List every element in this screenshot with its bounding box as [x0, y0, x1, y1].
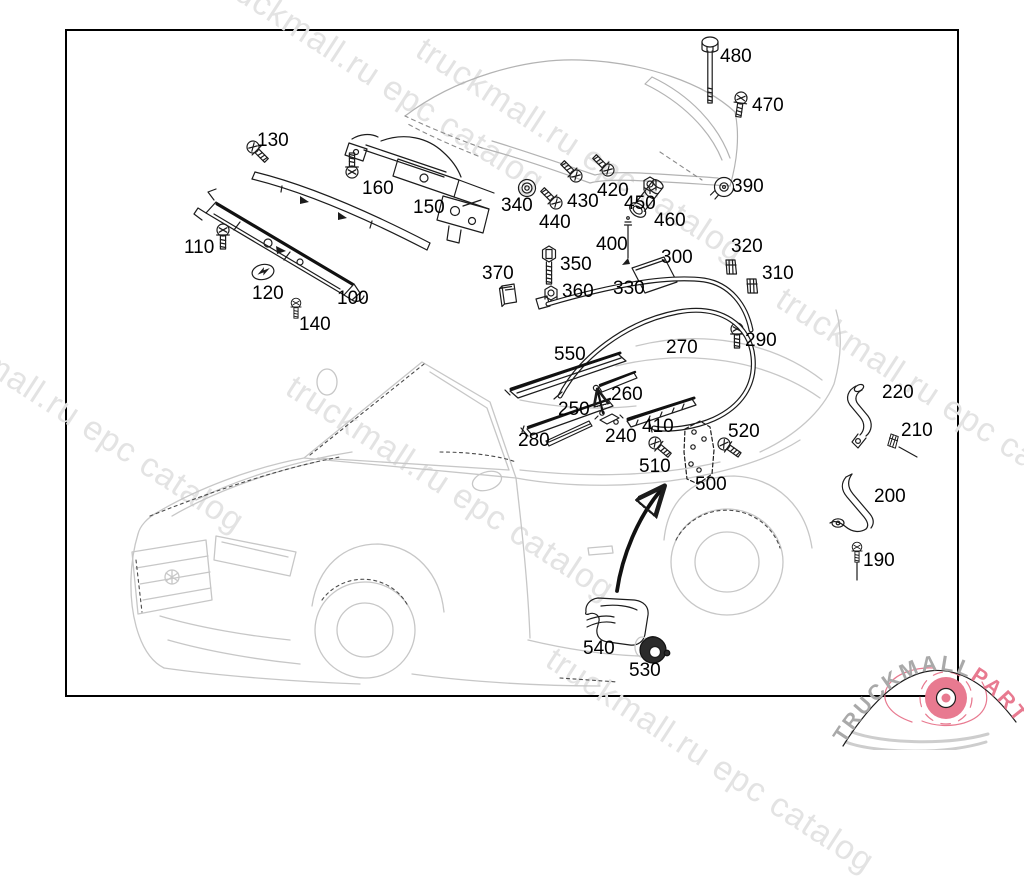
part-label-460: 460 — [654, 210, 686, 232]
part-label-330: 330 — [613, 278, 645, 300]
frame-strip-icon — [252, 172, 430, 250]
part-label-520: 520 — [728, 421, 760, 443]
handle-icon-220 — [848, 383, 872, 448]
pointer-arrow — [617, 490, 661, 591]
bolt-icon-350 — [543, 246, 556, 284]
strap-icon-200 — [830, 474, 873, 531]
truckmall-logo: TRUCKMALLPARTS — [0, 0, 1024, 750]
part-label-480: 480 — [720, 46, 752, 68]
part-label-190: 190 — [863, 550, 895, 572]
screw-icon-110 — [217, 224, 230, 249]
part-label-110: 110 — [184, 237, 214, 259]
part-label-250: 250 — [558, 399, 590, 421]
part-label-160: 160 — [362, 178, 394, 200]
part-label-540: 540 — [583, 638, 615, 660]
part-label-370: 370 — [482, 263, 514, 285]
part-label-130: 130 — [257, 130, 289, 152]
module-icon-370 — [500, 284, 517, 307]
part-label-290: 290 — [745, 330, 777, 352]
part-label-400: 400 — [596, 234, 628, 256]
part-label-200: 200 — [874, 486, 906, 508]
part-label-390: 390 — [732, 176, 764, 198]
part-label-100: 100 — [337, 288, 369, 310]
part-label-300: 300 — [661, 247, 693, 269]
part-label-220: 220 — [882, 382, 914, 404]
part-label-280: 280 — [518, 430, 550, 452]
clip-icon-240 — [595, 411, 623, 424]
part-label-450: 450 — [624, 193, 656, 215]
screw-icon-440 — [538, 185, 565, 212]
part-label-270: 270 — [666, 337, 698, 359]
part-label-430: 430 — [567, 191, 599, 213]
screw-icon-470 — [732, 91, 748, 118]
part-label-500: 500 — [695, 474, 727, 496]
part-label-550: 550 — [554, 344, 586, 366]
part-label-140: 140 — [299, 314, 331, 336]
part-label-350: 350 — [560, 254, 592, 276]
logo-text: TRUCKMALLPARTS — [0, 0, 1024, 747]
part-label-340: 340 — [501, 195, 533, 217]
clip-icon-310 — [747, 279, 758, 293]
bolt-icon-480 — [702, 37, 718, 103]
clip-icon-120 — [251, 262, 276, 281]
part-label-510: 510 — [639, 456, 671, 478]
part-label-360: 360 — [562, 281, 594, 303]
part-label-530: 530 — [629, 660, 661, 682]
bolt-icon-390 — [711, 178, 734, 200]
part-label-470: 470 — [752, 95, 784, 117]
part-label-150: 150 — [413, 197, 445, 219]
clip-icon-320 — [726, 260, 737, 274]
car-outline — [131, 310, 840, 686]
part-label-120: 120 — [252, 283, 284, 305]
part-label-310: 310 — [762, 263, 794, 285]
diagram-art: TRUCKMALLPARTS — [0, 0, 1024, 750]
rivet-icon-190 — [852, 542, 862, 580]
strip-icon-280 — [546, 421, 592, 446]
part-label-440: 440 — [539, 212, 571, 234]
catalog-diagram-page: { "watermark": { "text": "truckmall.ru e… — [0, 0, 1024, 750]
screw-icon-430 — [558, 158, 585, 185]
part-label-320: 320 — [731, 236, 763, 258]
part-label-410: 410 — [642, 416, 674, 438]
part-label-260: 260 — [611, 384, 643, 406]
part-label-210: 210 — [901, 420, 933, 442]
part-label-240: 240 — [605, 426, 637, 448]
